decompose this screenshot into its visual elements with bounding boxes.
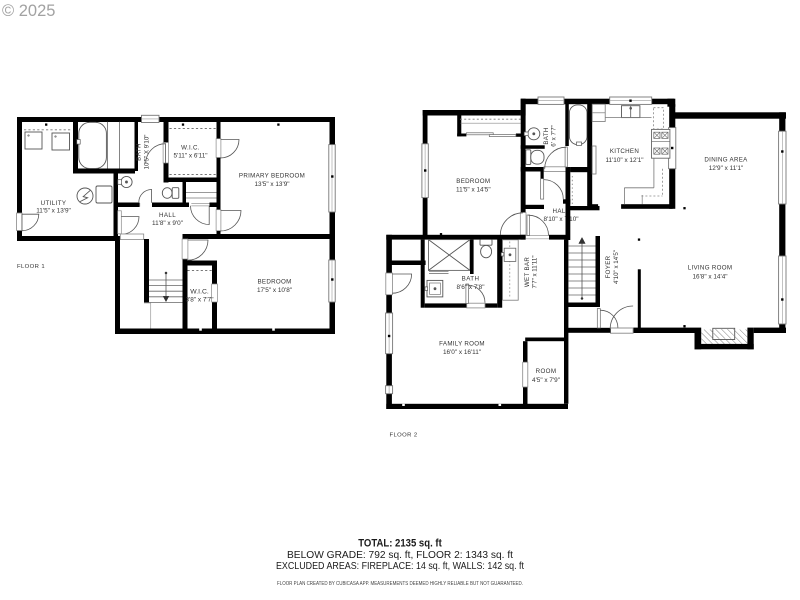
svg-text:KITCHEN: KITCHEN xyxy=(610,148,639,155)
svg-text:11'10" x 12'1": 11'10" x 12'1" xyxy=(605,157,643,164)
svg-text:BATH: BATH xyxy=(136,143,143,161)
svg-text:W.I.C.: W.I.C. xyxy=(190,289,209,296)
svg-text:11'5" x 13'9": 11'5" x 13'9" xyxy=(36,208,71,215)
svg-text:3'8" x 7'7": 3'8" x 7'7" xyxy=(186,297,214,304)
svg-text:UTILITY: UTILITY xyxy=(41,200,67,207)
svg-text:ROOM: ROOM xyxy=(536,368,557,375)
svg-text:LIVING ROOM: LIVING ROOM xyxy=(688,265,733,272)
svg-text:EXCLUDED AREAS: FIREPLACE: 14: EXCLUDED AREAS: FIREPLACE: 14 sq. ft, WA… xyxy=(276,561,524,572)
svg-text:7'7" x 11'11": 7'7" x 11'11" xyxy=(532,255,539,288)
svg-text:BELOW GRADE: 792 sq. ft, FLOOR: BELOW GRADE: 792 sq. ft, FLOOR 2: 1343 s… xyxy=(287,550,513,561)
svg-text:6' x 7'7": 6' x 7'7" xyxy=(551,125,558,146)
svg-text:PRIMARY BEDROOM: PRIMARY BEDROOM xyxy=(239,173,305,180)
svg-text:FLOOR 1: FLOOR 1 xyxy=(17,264,45,270)
svg-text:8'6" x 7'8": 8'6" x 7'8" xyxy=(457,284,485,291)
svg-text:8'10" x 7'10": 8'10" x 7'10" xyxy=(543,216,578,223)
svg-text:13'5" x 13'9": 13'5" x 13'9" xyxy=(254,181,289,188)
svg-text:DINING AREA: DINING AREA xyxy=(704,157,748,164)
svg-text:11'5" x 14'5": 11'5" x 14'5" xyxy=(456,186,491,193)
svg-text:FOYER: FOYER xyxy=(605,255,612,278)
svg-text:WET BAR: WET BAR xyxy=(524,257,531,287)
svg-text:W.I.C.: W.I.C. xyxy=(181,145,200,152)
svg-text:11'8" x 9'0": 11'8" x 9'0" xyxy=(152,220,183,227)
svg-text:FLOOR PLAN CREATED BY CUBICASA: FLOOR PLAN CREATED BY CUBICASA APP. MEAS… xyxy=(277,581,523,587)
svg-text:4'10" x 14'5": 4'10" x 14'5" xyxy=(613,250,620,284)
svg-text:5'11" x 6'11": 5'11" x 6'11" xyxy=(173,153,207,160)
svg-text:TOTAL: 2135 sq. ft: TOTAL: 2135 sq. ft xyxy=(358,538,442,550)
svg-text:16'0" x 16'11": 16'0" x 16'11" xyxy=(443,349,481,356)
svg-text:FLOOR 2: FLOOR 2 xyxy=(390,433,418,439)
svg-text:BEDROOM: BEDROOM xyxy=(456,178,490,185)
svg-text:BATH: BATH xyxy=(462,276,480,283)
svg-text:HALL: HALL xyxy=(159,212,176,219)
svg-text:© 2025: © 2025 xyxy=(2,2,55,20)
svg-text:12'9" x 11'1": 12'9" x 11'1" xyxy=(709,165,744,172)
svg-text:BEDROOM: BEDROOM xyxy=(257,279,291,286)
svg-text:FAMILY ROOM: FAMILY ROOM xyxy=(439,341,485,348)
svg-text:4'5" x 7'9": 4'5" x 7'9" xyxy=(532,377,560,384)
svg-text:BATH: BATH xyxy=(543,127,550,144)
svg-text:16'8" x 14'4": 16'8" x 14'4" xyxy=(692,274,727,281)
svg-text:17'5" x 10'8": 17'5" x 10'8" xyxy=(257,287,292,294)
